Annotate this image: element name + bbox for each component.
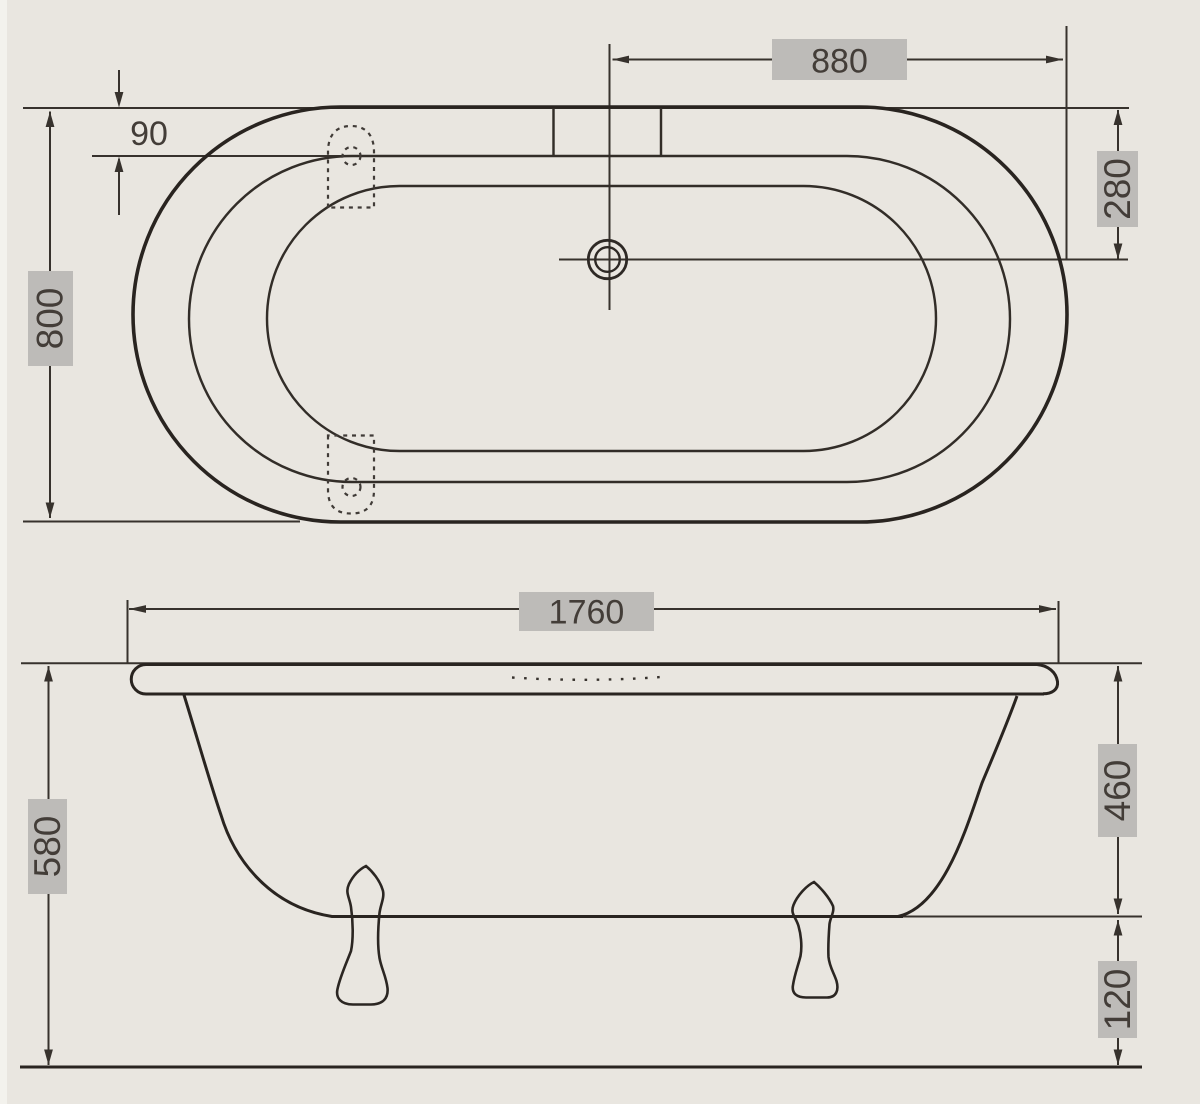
svg-text:580: 580 <box>27 816 68 878</box>
svg-text:800: 800 <box>30 288 71 350</box>
svg-text:880: 880 <box>811 43 868 81</box>
svg-text:90: 90 <box>130 115 168 153</box>
svg-text:1760: 1760 <box>549 594 625 632</box>
svg-text:120: 120 <box>1097 969 1138 1031</box>
svg-text:460: 460 <box>1097 760 1138 822</box>
svg-text:280: 280 <box>1097 158 1138 220</box>
